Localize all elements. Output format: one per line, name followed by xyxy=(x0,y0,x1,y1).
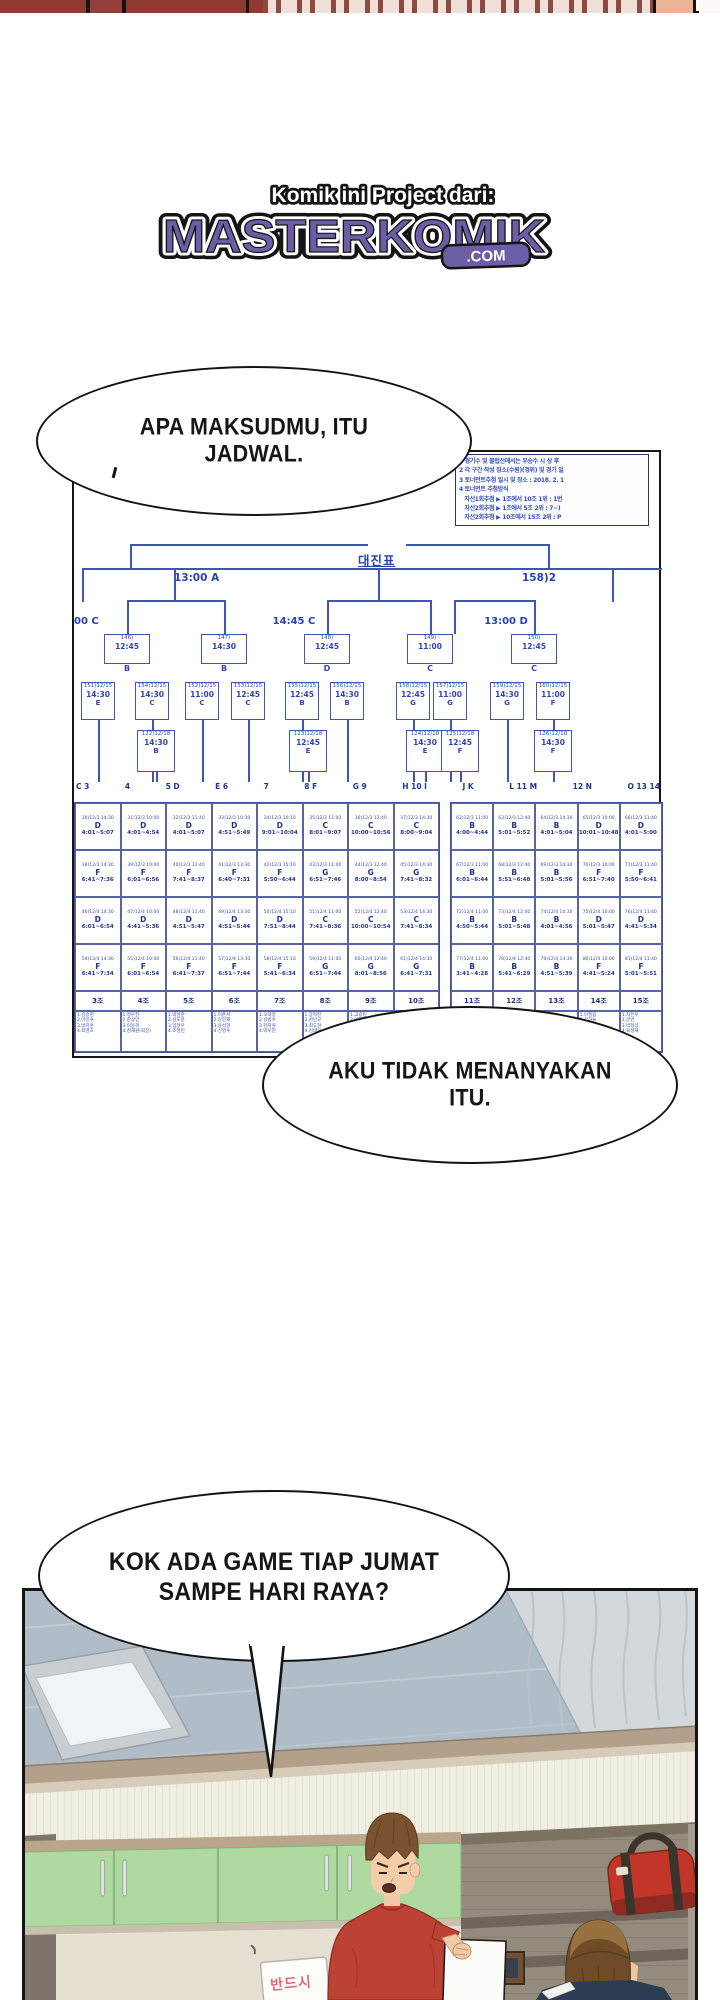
table-cell-line: 6:40~7:31 xyxy=(218,877,250,884)
table-cell-line: D xyxy=(231,916,237,924)
table-cell-line: 5:51~6:48 xyxy=(498,877,530,884)
table-cell-line: 4:41~5:36 xyxy=(127,924,159,931)
bracket-line xyxy=(378,568,380,600)
table-cell-line: G xyxy=(368,869,374,877)
table-cell: 53)12/4 14:30C7:41~8:34 xyxy=(394,897,440,944)
bracket-box-line: F xyxy=(535,747,571,756)
table-cell: 46)12/4 14:30D6:01~6:54 xyxy=(75,897,121,944)
table-cell-line: D xyxy=(596,916,602,924)
table-cell-line: B xyxy=(511,822,517,830)
bracket-box-line: 159)12/15 xyxy=(491,683,523,690)
bracket-line xyxy=(430,600,432,634)
table-cell-line: C xyxy=(413,822,419,830)
bracket-group-letter: B xyxy=(214,664,234,673)
bracket-box-line: 12:45 xyxy=(512,642,556,651)
table-cell-line: D xyxy=(638,822,644,830)
table-cell: 67)12/3 11:00B6:01~6:44 xyxy=(451,850,493,897)
leaf-token: J K xyxy=(462,782,473,791)
group-header-cell: 6조 xyxy=(212,991,258,1011)
bracket-box: 123)12/1812:45E xyxy=(289,730,327,772)
bracket-box-line: B xyxy=(331,699,363,708)
table-cell-line: 4:50~5:44 xyxy=(456,924,488,931)
bracket-box-line: 12:45 xyxy=(105,642,149,651)
table-cell-line: 6:41~7:37 xyxy=(173,971,205,978)
table-cell: 79)12/4 14:30B4:51~5:39 xyxy=(535,944,577,991)
table-cell-line: C xyxy=(322,822,328,830)
group-header-cell: 7조 xyxy=(257,991,303,1011)
bracket-box-line: 123)12/18 xyxy=(290,731,326,738)
table-cell-line: F xyxy=(232,869,237,877)
table-cell-line: B xyxy=(469,869,475,877)
bracket-box-line: 124)12/18 xyxy=(407,731,443,738)
bracket-box-line: 14:30 xyxy=(138,738,174,747)
previous-panel-strip xyxy=(0,0,720,13)
table-cell-line: B xyxy=(511,869,517,877)
leaf-token: G 9 xyxy=(353,782,367,791)
names-cell: 1.이준서2.강민재3.윤석현4.신영수 xyxy=(212,1011,258,1052)
leaf-token: 8 F xyxy=(304,782,317,791)
logo-banner-text: Komik ini Project dari: xyxy=(272,184,495,207)
bracket-box-line: 122)12/18 xyxy=(138,731,174,738)
bracket-line xyxy=(130,544,132,570)
leaf-token: 7 xyxy=(264,782,269,791)
table-cell-line: 5:41~6:34 xyxy=(264,971,296,978)
table-cell-line: F xyxy=(186,869,191,877)
table-cell-line: D xyxy=(596,822,602,830)
player-name: 4.최영호 xyxy=(77,1029,119,1034)
names-cell: 1.김승현2.이민수3.박지훈4.최영호 xyxy=(75,1011,121,1052)
table-cell-line: 6:51~7:46 xyxy=(309,877,341,884)
table-cell: 32)12/3 11:40D4:01~5:07 xyxy=(166,803,212,850)
table-cell-line: D xyxy=(95,916,101,924)
table-cell: 60)12/4 12:40G8:01~8:56 xyxy=(348,944,394,991)
bracket-box-line: 125)12/18 xyxy=(442,731,478,738)
table-cell: 77)12/4 11:00B3:41~4:28 xyxy=(451,944,493,991)
bracket-line xyxy=(507,720,509,782)
table-cell-line: 7:51~8:44 xyxy=(264,924,296,931)
group-header-cell: 13조 xyxy=(535,991,577,1011)
bracket-line xyxy=(327,600,329,634)
bracket-line xyxy=(460,772,462,782)
sign-text: 반드시 xyxy=(270,1973,313,1994)
table-cell-line: D xyxy=(638,916,644,924)
table-cell: 74)12/4 14:30B4:01~4:56 xyxy=(535,897,577,944)
table-cell: 65)12/3 10:00D10:01~10:48 xyxy=(578,803,620,850)
bracket-group-letter: D xyxy=(317,664,337,673)
table-cell: 33)12/3 10:30D4:51~5:49 xyxy=(212,803,258,850)
bubble2-line1: AKU TIDAK MENANYAKAN xyxy=(328,1057,612,1087)
bracket-line xyxy=(127,600,129,634)
bracket-leaf-row: C 345 DE 678 FG 9H 10 IJ KL 11 M12 NO 13… xyxy=(76,782,660,791)
table-cell: 63)12/3 12:40B5:01~5:52 xyxy=(493,803,535,850)
table-cell-line: 6:01~6:54 xyxy=(127,971,159,978)
bracket-line xyxy=(347,720,349,782)
bracket-line xyxy=(454,600,456,634)
table-cell-line: G xyxy=(322,963,328,971)
maroon-wall-segment xyxy=(90,0,122,13)
bracket-box-line: 14:30 xyxy=(202,642,246,651)
table-cell-line: 6:01~6:56 xyxy=(127,877,159,884)
bracket-box-line: 155)12/15 xyxy=(286,683,318,690)
bracket-box: 158)12/1512:45G xyxy=(396,682,430,720)
table-cell-line: 8:01~8:56 xyxy=(355,971,387,978)
table-cell-line: 4:01~4:56 xyxy=(541,924,573,931)
bracket-box: 150)12:45 xyxy=(511,634,557,664)
player-name: 4.조성민 xyxy=(168,1029,210,1034)
bracket-box-line: 12:45 xyxy=(286,690,318,699)
table-cell-line: D xyxy=(140,822,146,830)
leaf-token: E 6 xyxy=(215,782,228,791)
bubble1-line1: APA MAKSUDMU, ITU xyxy=(140,413,368,443)
table-cell: 37)12/3 14:30C8:00~9:04 xyxy=(394,803,440,850)
table-cell-line: D xyxy=(186,822,192,830)
table-cell: 48)12/4 11:40D4:51~5:47 xyxy=(166,897,212,944)
table-cell-line: 6:51~7:44 xyxy=(218,971,250,978)
table-cell-line: F xyxy=(141,963,146,971)
bracket-box-line: 146) xyxy=(105,635,149,642)
bracket-box: 155)12/1512:45B xyxy=(285,682,319,720)
comic-page: { "logo": { "banner": "Komik ini Project… xyxy=(0,0,720,2000)
bracket-line xyxy=(127,600,224,602)
bracket-line xyxy=(425,772,427,782)
table-cell: 47)12/4 10:00D4:41~5:36 xyxy=(121,897,167,944)
bracket-box-line: 12:45 xyxy=(290,738,326,747)
table-cell: 80)12/4 10:00F4:41~5:24 xyxy=(578,944,620,991)
leaf-token: H 10 I xyxy=(402,782,427,791)
bracket-box-line: 147) xyxy=(202,635,246,642)
masterkomik-logo: Komik ini Project dari: MASTERKOMIK MAST… xyxy=(140,168,570,278)
table-cell-line: 10:01~10:48 xyxy=(579,830,619,837)
bracket-box-line: G xyxy=(434,699,466,708)
table-cell: 68)12/3 12:40B5:51~6:48 xyxy=(493,850,535,897)
bracket-box-line: 149) xyxy=(408,635,452,642)
bracket-box-line: 12:45 xyxy=(232,690,264,699)
table-cell-line: 9:01~10:04 xyxy=(262,830,298,837)
table-cell-line: 4:41~5:24 xyxy=(583,971,615,978)
bracket-box-line: 156)12/15 xyxy=(331,683,363,690)
table-cell: 36)12/3 12:40C10:00~10:56 xyxy=(348,803,394,850)
table-cell-line: 8:00~8:54 xyxy=(355,877,387,884)
table-cell-line: 4:00~4:44 xyxy=(456,830,488,837)
table-cell-line: C xyxy=(322,916,328,924)
table-cell: 52)12/4 12:40C10:00~10:54 xyxy=(348,897,394,944)
bracket-line xyxy=(98,720,100,782)
table-cell-line: 10:00~10:56 xyxy=(351,830,391,837)
table-cell: 69)12/3 14:30B5:01~5:56 xyxy=(535,850,577,897)
table-cell-line: C xyxy=(413,916,419,924)
table-cell-line: C xyxy=(368,916,374,924)
bracket-box-line: 14:30 xyxy=(535,738,571,747)
table-cell-line: F xyxy=(141,869,146,877)
table-cell-line: F xyxy=(638,869,643,877)
skin-shape xyxy=(653,0,696,13)
bracket-box-line: 12:45 xyxy=(397,690,429,699)
table-cell-line: F xyxy=(638,963,643,971)
table-cell: 54)12/4 14:30F6:41~7:34 xyxy=(75,944,121,991)
table-cell-line: 4:01~5:00 xyxy=(625,830,657,837)
table-cell-line: B xyxy=(554,963,560,971)
logo-tld-text: .COM xyxy=(466,247,506,265)
table-cell-line: D xyxy=(231,822,237,830)
bracket-line xyxy=(130,544,368,546)
bracket-box-line: 148) xyxy=(305,635,349,642)
table-cell: 31)12/3 10:00D4:01~4:54 xyxy=(121,803,167,850)
table-cell: 59)12/4 11:00G6:51~7:44 xyxy=(303,944,349,991)
bracket-line xyxy=(612,568,614,602)
table-cell-line: F xyxy=(95,869,100,877)
table-cell: 30)12/3 14:30D4:01~5:07 xyxy=(75,803,121,850)
leaf-token: C 3 xyxy=(76,782,89,791)
bracket-box-line: 153)12/15 xyxy=(232,683,264,690)
bracket-box-line: 14:30 xyxy=(331,690,363,699)
table-cell: 70)12/3 10:00F6:51~7:40 xyxy=(578,850,620,897)
table-cell: 35)12/3 11:00C8:01~9:07 xyxy=(303,803,349,850)
bubble3-line1: KOK ADA GAME TIAP JUMAT xyxy=(109,1545,439,1578)
player-name: 4.박우진 xyxy=(259,1029,301,1034)
table-cell: 49)12/4 13:30D4:51~5:44 xyxy=(212,897,258,944)
ear xyxy=(410,1863,420,1877)
group-header-cell: 8조 xyxy=(303,991,349,1011)
table-cell-line: 4:51~5:47 xyxy=(173,924,205,931)
table-cell-line: 5:01~5:56 xyxy=(541,877,573,884)
table-cell-line: B xyxy=(511,916,517,924)
bracket-box: 151)12/1514:30E xyxy=(81,682,115,720)
margin-white xyxy=(699,0,720,13)
table-cell-line: D xyxy=(277,822,283,830)
bracket-line xyxy=(327,600,430,602)
table-cell: 34)12/3 10:10D9:01~10:04 xyxy=(257,803,303,850)
names-cell: 1.박성준2.김도윤3.임현우4.조성민 xyxy=(166,1011,212,1052)
bracket-box-line: 11:00 xyxy=(434,690,466,699)
bracket-box-line: 12:45 xyxy=(442,738,478,747)
table-cell: 45)12/3 14:30G7:41~8:32 xyxy=(394,850,440,897)
names-cell: 1.정우진2.한상민3.이동혁4.김재원(회장) xyxy=(121,1011,167,1052)
bracket-box-line: 11:00 xyxy=(186,690,218,699)
table-cell: 58)12/4 15:10F5:41~6:34 xyxy=(257,944,303,991)
table-cell: 78)12/4 12:40B5:41~6:29 xyxy=(493,944,535,991)
bracket-box-line: E xyxy=(290,747,326,756)
player-name: 4.신영수 xyxy=(214,1029,256,1034)
table-cell: 41)12/3 13:30F6:40~7:31 xyxy=(212,850,258,897)
table-cell-line: G xyxy=(322,869,328,877)
table-cell-line: F xyxy=(186,963,191,971)
table-cell-line: 5:01~5:51 xyxy=(625,971,657,978)
table-cell-line: 8:01~9:07 xyxy=(309,830,341,837)
table-cell: 55)12/4 10:00F6:01~6:54 xyxy=(121,944,167,991)
table-cell: 43)12/3 11:00G6:51~7:46 xyxy=(303,850,349,897)
bracket-box: 152)12/1511:00C xyxy=(185,682,219,720)
leaf-token: 4 xyxy=(125,782,130,791)
bracket-box: 157)12/1511:00G xyxy=(433,682,467,720)
speech-bubble-2: AKU TIDAK MENANYAKAN ITU. xyxy=(262,1006,678,1164)
bubble3-line2: SAMPE HARI RAYA? xyxy=(159,1575,390,1608)
leaf-token: 5 D xyxy=(166,782,180,791)
table-cell-line: F xyxy=(596,963,601,971)
table-cell-line: D xyxy=(277,916,283,924)
group-header-cell: 4조 xyxy=(121,991,167,1011)
bracket-line xyxy=(82,568,84,602)
bracket-box-line: C xyxy=(186,699,218,708)
bracket-box-line: B xyxy=(138,747,174,756)
table-cell-line: 6:51~7:40 xyxy=(583,877,615,884)
bracket-line xyxy=(548,544,550,570)
bracket-line xyxy=(248,720,250,782)
group-header-cell: 9조 xyxy=(348,991,394,1011)
table-cell: 50)12/4 15:10D7:51~8:44 xyxy=(257,897,303,944)
bracket-box: 159)12/1514:30G xyxy=(490,682,524,720)
bracket-box-line: G xyxy=(491,699,523,708)
table-cell-line: 5:01~5:47 xyxy=(583,924,615,931)
group-header-cell: 14조 xyxy=(578,991,620,1011)
bracket-line xyxy=(156,772,158,782)
bracket-box-line: 12:45 xyxy=(305,642,349,651)
table-cell-line: D xyxy=(140,916,146,924)
table-cell-line: F xyxy=(232,963,237,971)
table-cell-line: 4:01~5:07 xyxy=(82,830,114,837)
table-cell-line: 6:01~6:54 xyxy=(82,924,114,931)
open-mouth xyxy=(383,1884,396,1893)
table-cell: 76)12/4 11:40D4:41~5:34 xyxy=(620,897,662,944)
bracket-box: 149)11:00 xyxy=(407,634,453,664)
table-cell-line: 5:50~6:44 xyxy=(264,877,296,884)
logo-tld-badge: .COM xyxy=(442,242,531,268)
bracket-box-line: 14:30 xyxy=(136,690,168,699)
bracket-box-line: 14:30 xyxy=(82,690,114,699)
table-cell: 40)12/3 11:40F7:41~8:37 xyxy=(166,850,212,897)
bracket-line xyxy=(553,772,555,782)
window-grid-strip xyxy=(263,0,653,13)
table-cell-line: F xyxy=(277,869,282,877)
table-cell-line: 10:00~10:54 xyxy=(351,924,391,931)
table-cell-line: B xyxy=(511,963,517,971)
table-cell: 75)12/4 10:00D5:01~5:47 xyxy=(578,897,620,944)
bracket-line xyxy=(406,544,550,546)
table-cell-line: B xyxy=(554,869,560,877)
table-cell-line: D xyxy=(95,822,101,830)
bracket-box-line: 158)12/15 xyxy=(397,683,429,690)
group-header-cell: 15조 xyxy=(620,991,662,1011)
bracket-line xyxy=(612,568,662,570)
bracket-box-line: 151)12/15 xyxy=(82,683,114,690)
bracket-box: 160)12/1511:00F xyxy=(536,682,570,720)
table-cell: 61)12/4 14:30G6:41~7:31 xyxy=(394,944,440,991)
table-cell-line: G xyxy=(368,963,374,971)
table-cell-line: 7:41~8:37 xyxy=(173,877,205,884)
table-cell: 44)12/3 12:40G8:00~8:54 xyxy=(348,850,394,897)
table-cell-line: 6:41~7:36 xyxy=(82,877,114,884)
bracket-box-line: F xyxy=(537,699,569,708)
bubble1-line2: JADWAL. xyxy=(205,440,304,470)
table-cell-line: 5:41~6:29 xyxy=(498,971,530,978)
bracket-box: 154)12/1514:30C xyxy=(135,682,169,720)
table-cell: 66)12/3 11:40D4:01~5:00 xyxy=(620,803,662,850)
bracket-box-line: C xyxy=(232,699,264,708)
table-cell: 57)12/4 13:30F6:51~7:44 xyxy=(212,944,258,991)
bracket-box-line: C xyxy=(136,699,168,708)
bracket-box-line: 152)12/15 xyxy=(186,683,218,690)
table-cell-line: 6:51~7:44 xyxy=(309,971,341,978)
table-cell-line: B xyxy=(554,916,560,924)
bracket-box: 153)12/1512:45C xyxy=(231,682,265,720)
table-cell: 51)12/4 11:00C7:41~8:36 xyxy=(303,897,349,944)
speech-bubble-1: APA MAKSUDMU, ITU JADWAL. xyxy=(36,366,472,516)
bracket-box: 126)12/1814:30F xyxy=(534,730,572,772)
leaf-token: L 11 M xyxy=(509,782,537,791)
table-cell-line: 4:51~5:39 xyxy=(541,971,573,978)
table-cell-line: B xyxy=(554,822,560,830)
bracket-box: 125)12/1812:45F xyxy=(441,730,479,772)
table-cell: 62)12/3 11:00B4:00~4:44 xyxy=(451,803,493,850)
bracket-group-letter: C xyxy=(420,664,440,673)
bubble3-tail xyxy=(240,1630,300,1785)
group-header-cell: 3조 xyxy=(75,991,121,1011)
bracket-box-line: 154)12/15 xyxy=(136,683,168,690)
table-cell-line: B xyxy=(469,916,475,924)
table-cell-line: 5:50~6:41 xyxy=(625,877,657,884)
table-cell-line: 4:51~5:44 xyxy=(218,924,250,931)
maroon-wall-segment xyxy=(0,0,86,13)
bracket-box: 122)12/1814:30B xyxy=(137,730,175,772)
bracket-group-letter: B xyxy=(117,664,137,673)
leaf-token: 12 N xyxy=(573,782,592,791)
table-cell-line: 4:01~5:07 xyxy=(173,830,205,837)
bracket-box: 146)12:45 xyxy=(104,634,150,664)
group-header-cell: 5조 xyxy=(166,991,212,1011)
bracket-box-line: 14:30 xyxy=(407,738,443,747)
table-cell: 56)12/4 11:40F6:41~7:37 xyxy=(166,944,212,991)
table-cell-line: 5:01~5:48 xyxy=(498,924,530,931)
table-cell-line: 5:01~5:52 xyxy=(498,830,530,837)
table-cell-line: F xyxy=(596,869,601,877)
table-cell: 42)12/3 15:10F5:50~6:44 xyxy=(257,850,303,897)
table-cell: 73)12/4 12:40B5:01~5:48 xyxy=(493,897,535,944)
tournament-schedule-document: 1 경기수 및 클럽선에서는 우승수 시 상 후2 각 구간 작성 장소(수원)… xyxy=(72,450,661,1058)
bracket-line xyxy=(174,568,176,600)
table-cell-line: 6:41~7:34 xyxy=(82,971,114,978)
table-cell: 39)12/3 10:00F6:01~6:56 xyxy=(121,850,167,897)
bracket-box-line: B xyxy=(286,699,318,708)
bracket-box-line: E xyxy=(407,747,443,756)
bracket-box: 148)12:45 xyxy=(304,634,350,664)
bracket-box-line: E xyxy=(82,699,114,708)
bracket-box-line: 11:00 xyxy=(537,690,569,699)
table-cell-line: C xyxy=(368,822,374,830)
table-cell-line: 8:00~9:04 xyxy=(400,830,432,837)
bracket-box: 124)12/1814:30E xyxy=(406,730,444,772)
bracket-box-line: 150) xyxy=(512,635,556,642)
table-cell-line: 4:41~5:34 xyxy=(625,924,657,931)
bracket-box-line: 11:00 xyxy=(408,642,452,651)
table-cell-line: 7:41~8:36 xyxy=(309,924,341,931)
maroon-wall-segment xyxy=(126,0,246,13)
bracket-box-line: F xyxy=(442,747,478,756)
maroon-wall-segment xyxy=(249,0,263,13)
table-cell: 71)12/3 11:40F5:50~6:41 xyxy=(620,850,662,897)
bracket-line xyxy=(308,772,310,782)
table-cell-line: 4:01~5:04 xyxy=(541,830,573,837)
bracket-line xyxy=(534,600,536,634)
table-cell: 72)12/4 11:00B4:50~5:44 xyxy=(451,897,493,944)
bracket-line xyxy=(224,600,226,634)
bracket-line xyxy=(82,568,614,570)
table-cell-line: 3:41~4:28 xyxy=(456,971,488,978)
table-cell-line: F xyxy=(277,963,282,971)
table-cell-line: 4:01~4:54 xyxy=(127,830,159,837)
bracket-box-line: 160)12/15 xyxy=(537,683,569,690)
bracket-group-letter: C xyxy=(524,664,544,673)
bracket-box: 147)14:30 xyxy=(201,634,247,664)
table-cell-line: B xyxy=(469,963,475,971)
